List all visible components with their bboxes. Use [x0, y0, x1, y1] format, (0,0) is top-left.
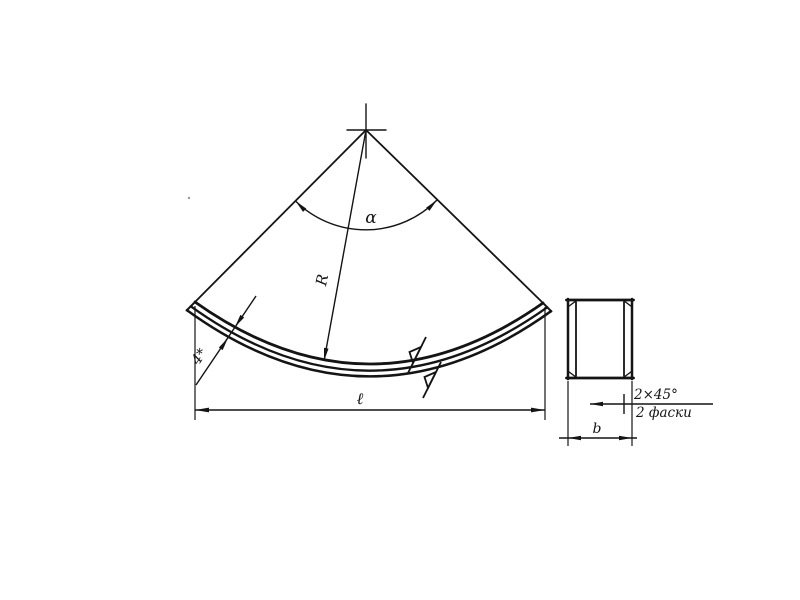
- chamfer-callout: 2×45° 2 фаски: [590, 387, 713, 421]
- angle-arrowhead-left: [294, 199, 306, 211]
- width-arrowhead-right: [619, 436, 632, 441]
- curved-strip: [187, 302, 552, 376]
- surface-finish-mark-top: [408, 337, 426, 373]
- chamfer-size-label: 2×45°: [633, 387, 678, 403]
- right-radial-line: [366, 130, 543, 303]
- radius-dimension: R: [312, 130, 366, 361]
- left-radial-line: [195, 130, 366, 302]
- width-dimension: b: [559, 381, 637, 446]
- length-label: ℓ: [357, 389, 364, 408]
- ink-speck: [188, 197, 190, 199]
- angle-arrowhead-right: [426, 198, 438, 210]
- engineering-drawing-canvas: R α 4*: [0, 0, 800, 600]
- finish-mark-flag: [425, 372, 437, 388]
- drawing-sheet: R α 4*: [0, 0, 800, 600]
- strip-top-curve: [195, 302, 543, 364]
- angle-label: α: [365, 208, 377, 228]
- strip-middle-curve: [191, 306, 547, 370]
- cross-section-view: [567, 299, 634, 379]
- width-arrowhead-left: [568, 436, 581, 441]
- width-label: b: [593, 421, 602, 437]
- angle-dimension: α: [294, 198, 439, 229]
- chamfer-arrowhead: [590, 402, 603, 407]
- chamfer-note-label: 2 фаски: [635, 405, 692, 421]
- length-arrowhead-left: [195, 408, 209, 413]
- thickness-label: 4*: [188, 346, 211, 369]
- radius-label: R: [312, 273, 332, 289]
- thickness-arrowhead-bottom: [219, 337, 230, 350]
- length-arrowhead-right: [531, 408, 545, 413]
